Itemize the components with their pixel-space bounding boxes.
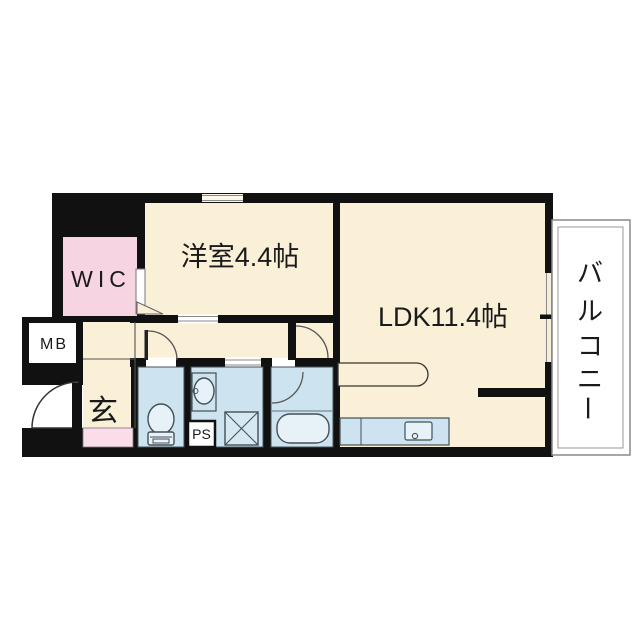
threshold-toilet-door bbox=[146, 358, 176, 368]
svg-text:コ: コ bbox=[577, 331, 603, 361]
western-room-label: 洋室4.4帖 bbox=[181, 242, 300, 272]
window-western-room bbox=[202, 194, 243, 202]
svg-text:ル: ル bbox=[577, 296, 603, 326]
balcony-label: バ ル コ ニ ー bbox=[572, 258, 603, 421]
washer-pan-icon bbox=[225, 412, 258, 445]
wall-room-divider bbox=[333, 200, 340, 450]
svg-text:バ: バ bbox=[577, 258, 603, 288]
kitchen-sink-unit-icon bbox=[340, 418, 449, 445]
kitchen-counter-icon bbox=[338, 363, 428, 386]
toilet-icon bbox=[148, 404, 174, 445]
entrance-label: 玄 bbox=[88, 395, 118, 428]
wall-bottom-left-corner bbox=[22, 428, 83, 457]
entrance-door bbox=[32, 382, 82, 430]
wall-washroom-bath bbox=[263, 363, 271, 450]
entrance-step-strip bbox=[83, 428, 133, 447]
hallway-floor bbox=[135, 322, 288, 358]
wall-kitchen-stub bbox=[478, 388, 545, 397]
threshold-washroom-door bbox=[225, 358, 261, 368]
bathtub-icon bbox=[277, 414, 329, 443]
svg-text:ニ: ニ bbox=[577, 364, 603, 394]
pipe-space-label: PS bbox=[192, 426, 211, 442]
floorplan: 洋室4.4帖 LDK11.4帖 WIC MB 玄 PS バ ル コ ニ ー bbox=[0, 0, 638, 640]
threshold-western-room-door bbox=[178, 315, 218, 324]
wall-bottom bbox=[83, 447, 553, 457]
ldk-label: LDK11.4帖 bbox=[378, 302, 508, 332]
wic-label: WIC bbox=[71, 266, 131, 292]
meter-box-label: MB bbox=[40, 336, 68, 353]
wall-hallway-top bbox=[130, 315, 340, 323]
washbasin-icon bbox=[192, 373, 216, 411]
svg-text:ー: ー bbox=[572, 395, 602, 421]
